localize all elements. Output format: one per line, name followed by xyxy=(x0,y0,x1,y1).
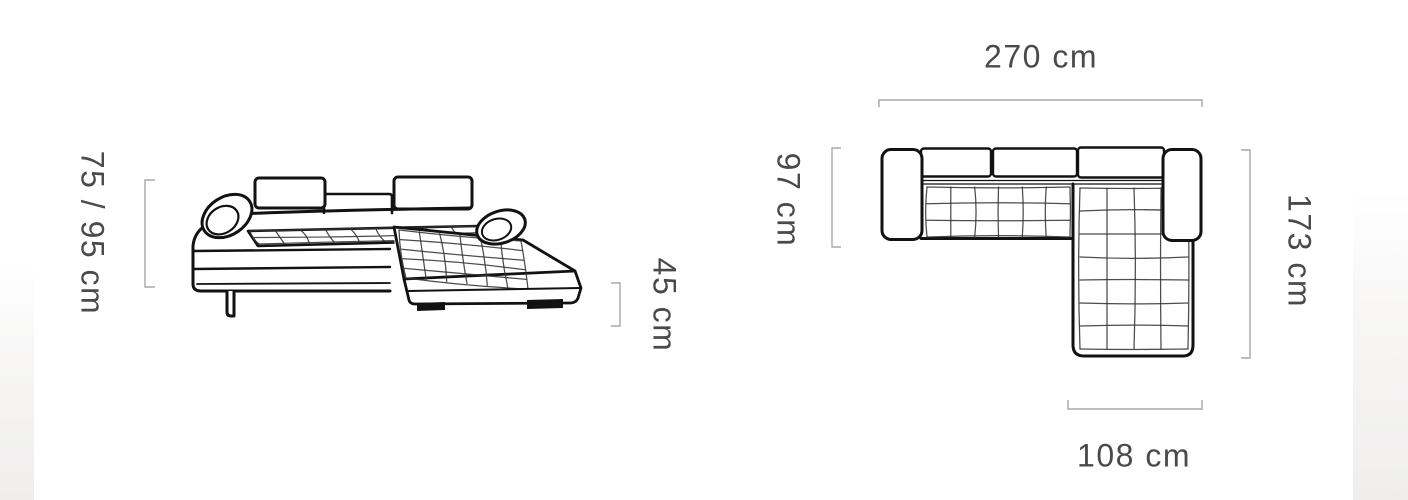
armrest-left xyxy=(882,150,922,240)
chaise-width-dimension-label: 108 cm xyxy=(1077,438,1191,475)
dimension-diagram: 75 / 95 cm 45 cm 270 cm 97 cm 173 cm 108… xyxy=(0,0,1408,500)
dim-bracket-length-173 xyxy=(1241,150,1250,358)
sofa-side-view-drawing xyxy=(193,177,581,316)
headrest-left xyxy=(255,178,325,208)
back-cushion-2 xyxy=(993,149,1077,177)
sofa-foot-front-left xyxy=(417,302,445,311)
height-dimension-label: 75 / 95 cm xyxy=(74,151,111,315)
width-dimension-label: 270 cm xyxy=(984,39,1098,76)
dim-bracket-seat-height-45 xyxy=(611,283,620,326)
depth-dimension-label: 97 cm xyxy=(770,153,807,248)
seat-height-dimension-label: 45 cm xyxy=(646,258,683,353)
sofa-top-view-drawing xyxy=(882,148,1201,357)
headrest-right xyxy=(394,177,472,209)
seat-quilting-top xyxy=(926,187,1071,237)
dim-bracket-height-75-95 xyxy=(145,180,155,287)
armrest-right xyxy=(1163,150,1201,241)
sofa-foot-front-right xyxy=(527,299,563,309)
back-cushion-1 xyxy=(921,149,991,177)
dim-bracket-chaise-108 xyxy=(1068,400,1202,409)
dim-bracket-width-270 xyxy=(879,100,1202,107)
length-dimension-label: 173 cm xyxy=(1281,194,1318,308)
dim-bracket-depth-97 xyxy=(832,148,841,247)
sofa-drawings xyxy=(0,0,1408,500)
back-cushion-3 xyxy=(1078,148,1164,178)
sofa-foot-left xyxy=(227,291,234,316)
